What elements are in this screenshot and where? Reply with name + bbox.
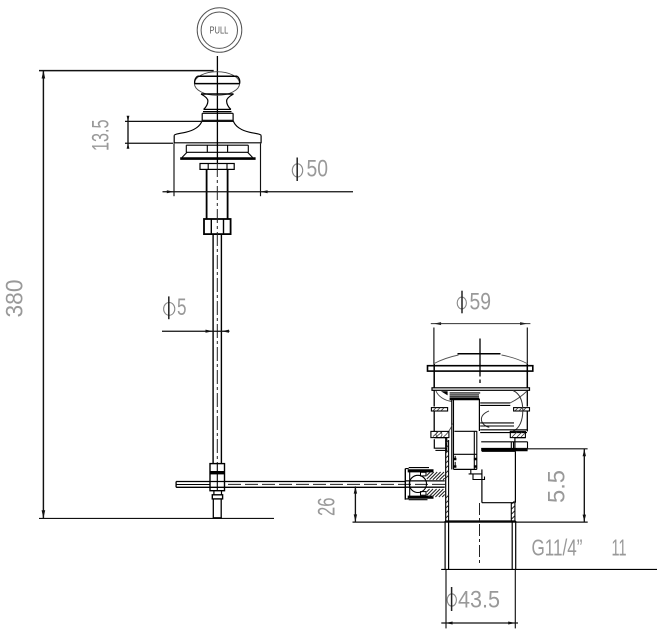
svg-text:50: 50 [307,156,329,183]
svg-text:PULL: PULL [210,25,229,36]
svg-text:G11/4”: G11/4” [532,535,583,561]
svg-text:26: 26 [314,498,341,517]
svg-text:43.5: 43.5 [458,586,500,613]
svg-text:11: 11 [612,535,627,561]
svg-text:5: 5 [177,294,187,321]
svg-text:5.5: 5.5 [544,470,571,503]
svg-text:380: 380 [2,280,29,318]
svg-text:59: 59 [470,288,492,315]
svg-text:13.5: 13.5 [88,120,115,152]
